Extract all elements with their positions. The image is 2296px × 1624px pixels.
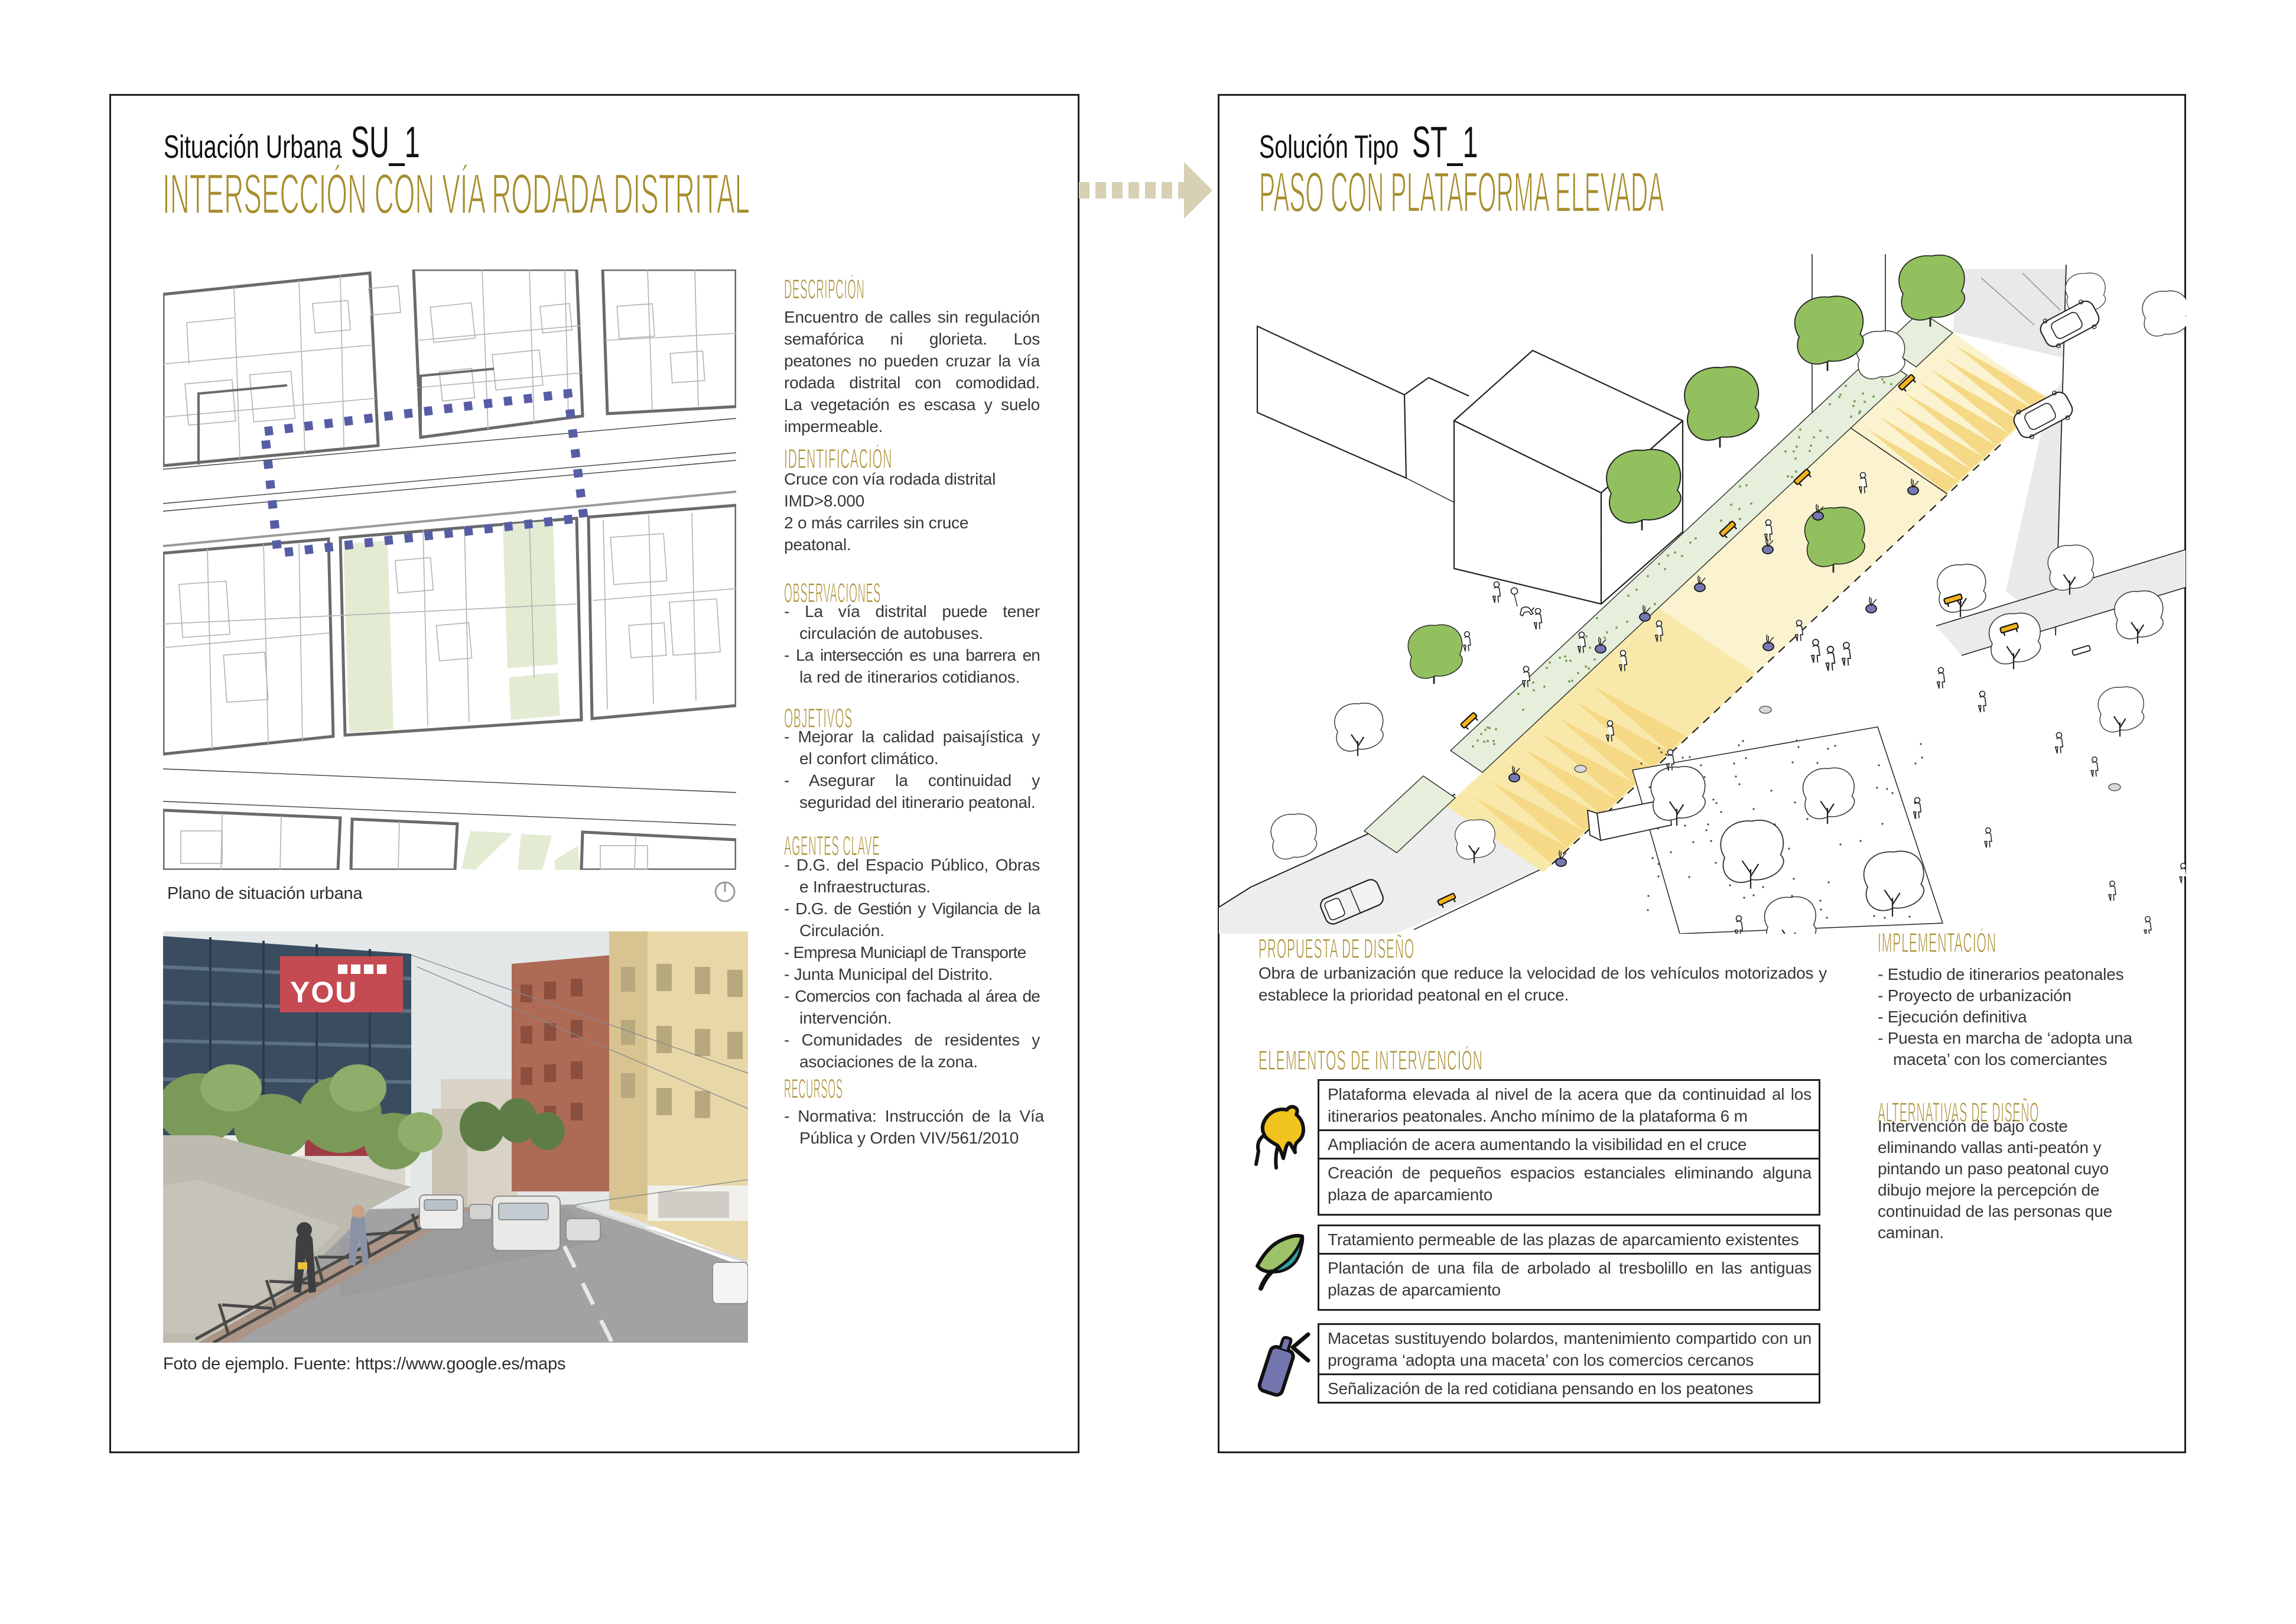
svg-text:YOU: YOU	[290, 976, 357, 1009]
